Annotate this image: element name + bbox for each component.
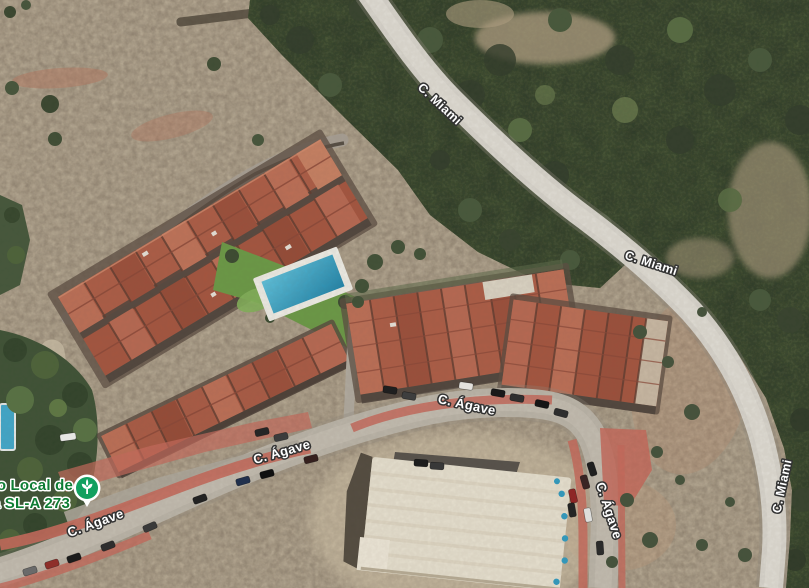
satellite-map-canvas[interactable]: ero Local de ta SL-A 273 C. Miami C. Mia… <box>0 0 809 588</box>
poi-label[interactable]: ero Local de ta SL-A 273 <box>0 477 73 512</box>
grain-overlay <box>0 0 809 588</box>
parked-car <box>596 541 604 555</box>
poi-label-line1[interactable]: ero Local de <box>0 477 73 494</box>
poi-label-line2[interactable]: ta SL-A 273 <box>0 495 70 512</box>
parked-car <box>430 462 444 470</box>
parked-car <box>414 459 428 467</box>
satellite-imagery: ero Local de ta SL-A 273 C. Miami C. Mia… <box>0 0 809 588</box>
